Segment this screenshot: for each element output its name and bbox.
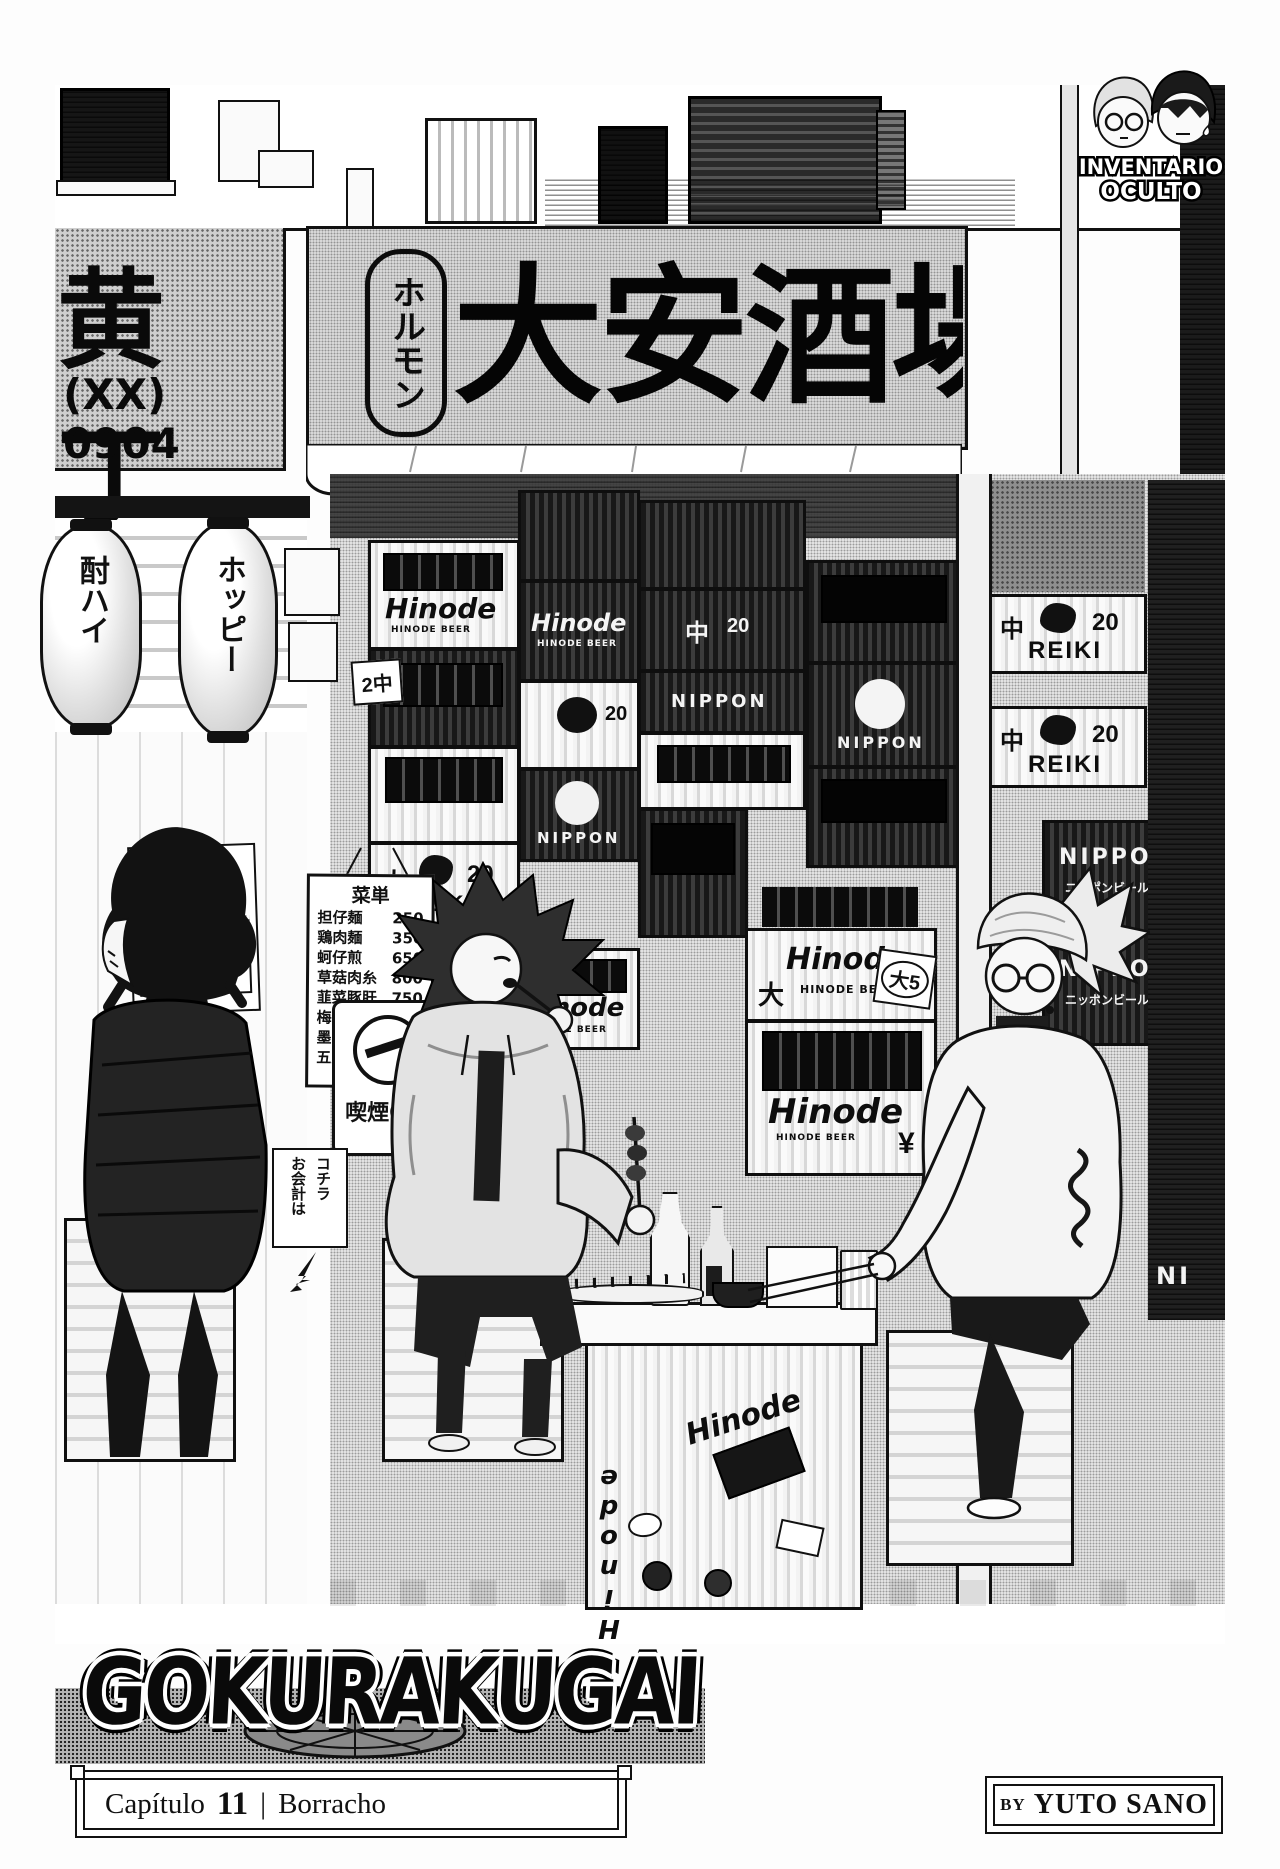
lantern-cap-bottom (70, 723, 112, 735)
lantern-hoppy: ホッピー (178, 522, 278, 738)
lantern-cap-top (70, 519, 112, 531)
reiki-stack-shade (985, 480, 1145, 592)
drain-pipe (1060, 85, 1079, 475)
crate-size: 中 (685, 613, 709, 648)
crate-mid-20: 中 20 (638, 588, 806, 672)
crate-reiki-label: REIKI (1028, 751, 1102, 779)
credit-box-inner: BY YUTO SANO (993, 1784, 1215, 1826)
crate-nippon-circle-2: NIPPON (806, 662, 962, 768)
logo-blob (557, 697, 597, 733)
credit-by: BY (1000, 1795, 1026, 1815)
crate-count: 20 (727, 615, 749, 638)
chapter-separator: | (260, 1787, 266, 1821)
woman-face (986, 938, 1062, 1014)
character-right-woman (690, 850, 1150, 1550)
payment-line1: お会計は (287, 1156, 308, 1246)
crate-reiki-1: 中 20 REIKI (985, 594, 1147, 674)
window-sill (56, 180, 176, 196)
credit-box: BY YUTO SANO (985, 1776, 1223, 1834)
crate-light-2: 20 (518, 680, 640, 770)
woman-thigh (950, 1298, 1090, 1360)
lantern-cap-top (207, 517, 248, 529)
bottle-window (383, 553, 503, 591)
skewer-meat-1 (625, 1125, 645, 1141)
crate-reiki-2: 中 20 REIKI (985, 706, 1147, 788)
tag-2chu-text: 2中 (360, 666, 393, 697)
hoodie-center-panel (473, 1051, 504, 1202)
main-sign-big-text: 大安酒場 (453, 253, 963, 429)
window-shutter-left (60, 88, 170, 186)
bottle-window (657, 745, 791, 783)
crate-brand-sub: HINODE BEER (391, 625, 471, 635)
main-sign-oval-text: ホルモン (382, 275, 431, 411)
center-guy-face (451, 934, 521, 1004)
can-1 (642, 1561, 672, 1591)
crate-size: 中 (1000, 609, 1024, 644)
center-guy-shins (436, 1351, 552, 1437)
ground (55, 1604, 1225, 1644)
conduit-box (346, 168, 374, 228)
meter-box-1 (284, 548, 340, 616)
eave-shadow (545, 176, 1015, 226)
skewer-meat-2 (627, 1145, 647, 1161)
meter-box-2 (288, 622, 338, 682)
woman-earring (1046, 1006, 1054, 1014)
character-center-guy (318, 845, 668, 1465)
woman-shoe (968, 1498, 1020, 1518)
logo-line2: OCULTO (1100, 179, 1201, 205)
crate-dark-2 (518, 490, 640, 582)
reiki-logo-blob (1040, 715, 1076, 745)
far-right-crate-column: NI (1148, 480, 1225, 1320)
crate-brand-sub: HINODE BEER (537, 639, 617, 649)
reiki-logo-blob (1040, 603, 1076, 633)
center-guy-foot-2 (515, 1439, 555, 1455)
center-guy-left-hand (626, 1206, 654, 1234)
crate-nippon-band: NIPPON (638, 670, 806, 734)
chapter-word: Capítulo (105, 1788, 205, 1821)
tag-2chu: 2中 (351, 658, 404, 705)
crate-nippon: NIPPON (837, 733, 925, 752)
circle-logo (555, 781, 599, 825)
crate-count: 20 (605, 703, 627, 726)
crate-hinode-1: Hinode HINODE BEER (368, 540, 520, 650)
crate-count: 20 (1092, 721, 1119, 749)
lantern-hoppy-text: ホッピー (206, 554, 250, 674)
crate-nippon: NIPPON (671, 691, 768, 712)
side-sign: 黄丁 (XX) 0904 (55, 228, 286, 471)
crate-brand: Hinode (594, 1463, 624, 1643)
main-signboard: ホルモン 大安酒場 (306, 226, 968, 450)
left-man-jacket (85, 1000, 266, 1291)
chapter-box-corner-right (617, 1765, 632, 1780)
center-guy-foot-1 (429, 1435, 469, 1451)
window-shutters (425, 118, 537, 224)
crate-reiki-label: REIKI (1028, 637, 1102, 665)
main-sign-oval: ホルモン (365, 249, 447, 437)
crate-partial-ni: NI (1156, 1262, 1191, 1290)
lantern-rail (55, 496, 310, 518)
bottle-window (821, 575, 947, 623)
bottle-window (385, 757, 503, 803)
chopstick-1 (748, 1264, 874, 1290)
chapter-box-inner: Capítulo 11 | Borracho (83, 1778, 619, 1830)
chapter-name: Borracho (278, 1788, 386, 1821)
manga-page: INVENTARIO OCULTO 黄丁 (XX) 0904 ホルモン 大安酒場… (0, 0, 1280, 1869)
scanlator-logo: INVENTARIO OCULTO (1078, 56, 1224, 206)
crate-brand: Hinode (531, 611, 626, 635)
character-left-man (52, 815, 282, 1465)
woman-shin (974, 1334, 1024, 1498)
side-sign-phone: (XX) 0904 (63, 370, 277, 468)
sideways-hinode-label: Hinode (596, 1463, 622, 1643)
lantern-chuhai-text: 酎ハイ (69, 555, 113, 645)
crate-size: 中 (1000, 721, 1024, 756)
vent-duct-elbow (258, 150, 314, 188)
credit-name: YUTO SANO (1034, 1789, 1208, 1821)
crate-dark-5 (806, 560, 962, 664)
logo-line1: INVENTARIO (1079, 155, 1223, 179)
crate-hinode-inverse: Hinode HINODE BEER (518, 580, 640, 682)
skewer-meat-3 (626, 1165, 646, 1181)
left-man-legs (106, 1291, 218, 1457)
crate-light-1 (368, 746, 520, 844)
crate-count: 20 (1092, 609, 1119, 637)
chopstick-2 (750, 1274, 878, 1302)
lantern-cap-bottom (207, 731, 248, 743)
crate-light-3 (638, 732, 806, 810)
chapter-box: Capítulo 11 | Borracho (75, 1770, 627, 1838)
series-title: GOKURAKUGAI (80, 1640, 702, 1746)
can-2 (704, 1569, 732, 1597)
chapter-number: 11 (217, 1786, 248, 1823)
circle-logo (855, 679, 905, 729)
bottle-window (821, 779, 947, 823)
crate-dark-3 (638, 500, 806, 590)
lantern-chuhai: 酎ハイ (40, 524, 142, 730)
sticker-2 (626, 1511, 663, 1539)
crate-brand: Hinode (385, 595, 496, 623)
